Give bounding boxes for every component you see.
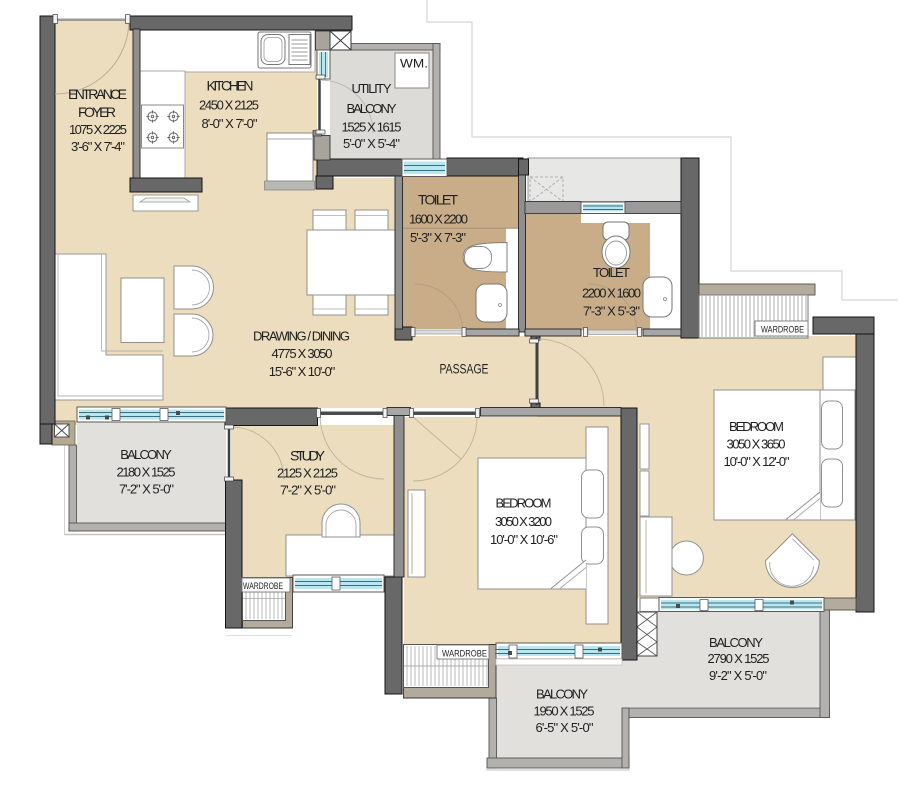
svg-text:BALCONY: BALCONY: [120, 447, 172, 462]
svg-text:BEDROOM: BEDROOM: [496, 496, 552, 511]
svg-text:BEDROOM: BEDROOM: [729, 419, 784, 434]
svg-text:3'-6" X 7'-4": 3'-6" X 7'-4": [71, 139, 125, 154]
svg-text:8'-0" X 7'-0": 8'-0" X 7'-0": [202, 116, 258, 131]
svg-text:STUDY: STUDY: [290, 448, 326, 464]
svg-text:7'-3" X 5'-3": 7'-3" X 5'-3": [583, 304, 640, 319]
svg-text:2790 X 1525: 2790 X 1525: [708, 651, 770, 666]
svg-text:10'-0" X 10'-6": 10'-0" X 10'-6": [490, 532, 558, 547]
svg-text:2180 X 1525: 2180 X 1525: [117, 465, 176, 480]
svg-text:UTILITY: UTILITY: [352, 81, 392, 96]
svg-text:2125 X 2125: 2125 X 2125: [277, 466, 338, 481]
svg-text:WARDROBE: WARDROBE: [442, 649, 487, 659]
svg-text:WARDROBE: WARDROBE: [761, 325, 804, 335]
svg-text:7'-2" X 5'-0": 7'-2" X 5'-0": [119, 482, 174, 497]
svg-text:3050 X 3650: 3050 X 3650: [727, 437, 786, 452]
svg-text:10'-0" X 12'-0": 10'-0" X 12'-0": [724, 454, 790, 469]
svg-text:1525 X 1615: 1525 X 1615: [342, 120, 402, 135]
svg-text:4775 X 3050: 4775 X 3050: [272, 346, 333, 361]
svg-text:TOILET: TOILET: [593, 265, 630, 280]
svg-text:2200 X 1600: 2200 X 1600: [582, 286, 641, 301]
svg-text:1075 X 2225: 1075 X 2225: [69, 122, 127, 137]
svg-text:BALCONY: BALCONY: [709, 635, 763, 650]
svg-text:1950 X 1525: 1950 X 1525: [534, 704, 595, 719]
svg-text:TOILET: TOILET: [418, 192, 458, 208]
svg-text:FOYER: FOYER: [78, 104, 116, 120]
svg-text:WM.: WM.: [400, 59, 428, 71]
svg-text:5'-0" X 5'-4": 5'-0" X 5'-4": [343, 136, 400, 151]
svg-text:6'-5" X 5'-0": 6'-5" X 5'-0": [536, 720, 594, 735]
svg-text:1600 X 2200: 1600 X 2200: [409, 212, 468, 227]
svg-text:KITCHEN: KITCHEN: [207, 78, 254, 94]
svg-text:9'-2" X 5'-0": 9'-2" X 5'-0": [709, 668, 767, 683]
svg-text:2450 X 2125: 2450 X 2125: [199, 98, 259, 113]
svg-text:WARDROBE: WARDROBE: [243, 581, 283, 591]
svg-text:ENTRANCE: ENTRANCE: [68, 86, 127, 102]
svg-text:3050 X 3200: 3050 X 3200: [495, 514, 552, 529]
svg-text:PASSAGE: PASSAGE: [440, 361, 489, 377]
svg-text:BALCONY: BALCONY: [347, 101, 397, 116]
svg-text:7'-2" X 5'-0": 7'-2" X 5'-0": [280, 483, 336, 498]
svg-text:15'-6" X 10'-0": 15'-6" X 10'-0": [269, 364, 336, 379]
svg-text:DRAWING / DINING: DRAWING / DINING: [253, 329, 350, 344]
svg-text:BALCONY: BALCONY: [536, 687, 588, 702]
svg-text:5'-3" X 7'-3": 5'-3" X 7'-3": [410, 230, 466, 245]
